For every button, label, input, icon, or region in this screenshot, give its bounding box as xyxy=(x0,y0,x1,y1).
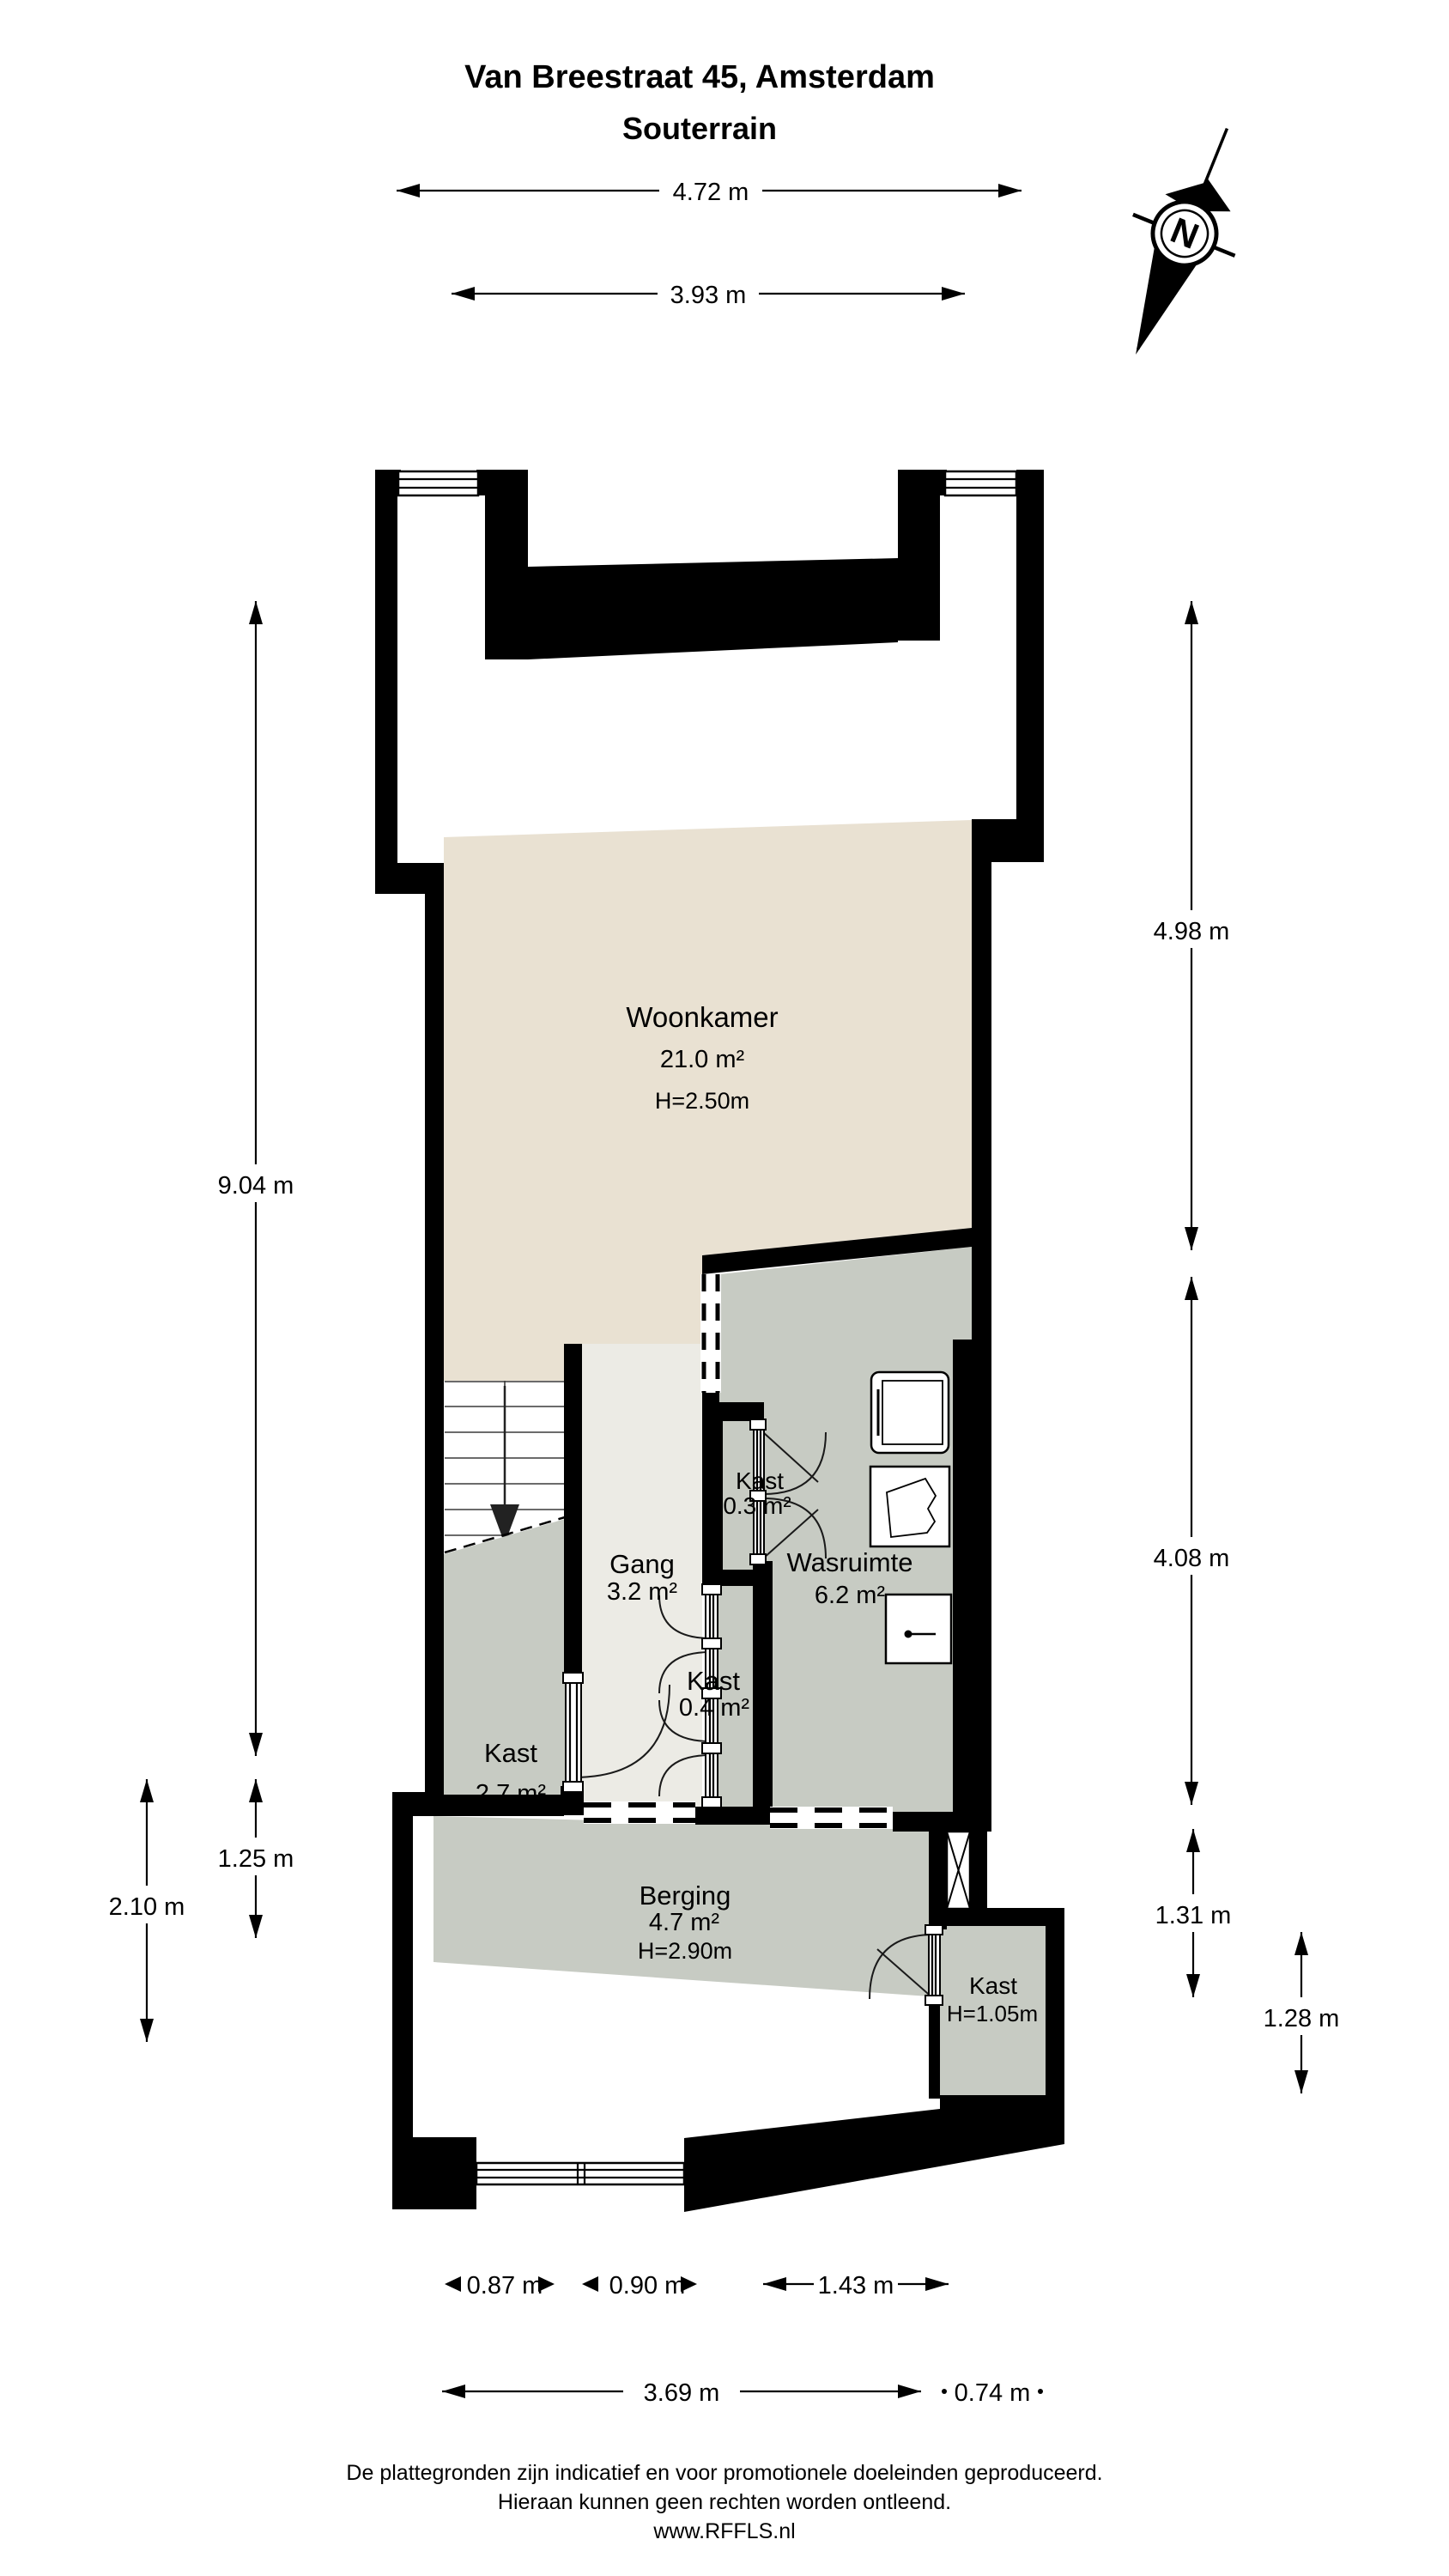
wall-left-post xyxy=(485,470,528,659)
title-line1: Van Breestraat 45, Amsterdam xyxy=(464,59,935,95)
wall-stairs-gang xyxy=(564,1344,582,1681)
page-title: Van Breestraat 45, Amsterdam Souterrain xyxy=(464,59,935,146)
wall-right-mid xyxy=(972,862,991,1344)
title-line2: Souterrain xyxy=(622,111,777,146)
dim-label: 0.90 m xyxy=(609,2272,686,2300)
footer-disclaimer: De plattegronden zijn indicatief en voor… xyxy=(346,2461,1102,2543)
wall-kast03-left xyxy=(702,1411,723,1571)
dim-label: 1.25 m xyxy=(218,1845,294,1873)
label-kast105-height: H=1.05m xyxy=(947,2001,1038,2026)
window-icon-bottom xyxy=(476,2163,684,2184)
label-wasruimte-area: 6.2 m² xyxy=(815,1582,886,1609)
label-kast27-name: Kast xyxy=(484,1738,537,1768)
dim-label: 1.28 m xyxy=(1264,2005,1340,2032)
wall-below-shaft xyxy=(947,1908,987,1926)
dim-label: 3.93 m xyxy=(670,282,747,309)
wall-left-upper xyxy=(375,470,397,868)
label-gang-name: Gang xyxy=(609,1549,675,1579)
dimension-bottom-3-69: 3.69 m xyxy=(442,2379,921,2407)
sink-icon xyxy=(886,1595,951,1663)
wall-topleft-corner xyxy=(375,470,401,495)
compass-icon: N xyxy=(1085,108,1278,375)
dim-label: 4.72 m xyxy=(673,179,749,206)
dim-label: 9.04 m xyxy=(218,1172,294,1200)
dimension-left-2-10: 2.10 m xyxy=(96,1779,197,2042)
dimension-right-1-28: 1.28 m xyxy=(1250,1932,1353,2093)
label-gang-area: 3.2 m² xyxy=(607,1578,678,1606)
dimension-right-4-98: 4.98 m xyxy=(1140,601,1243,1250)
label-kast03-name: Kast xyxy=(736,1467,784,1494)
label-kast04-name: Kast xyxy=(687,1666,740,1696)
passage-woonkamer-wasruimte xyxy=(700,1274,721,1393)
label-kast04-area: 0.4 m² xyxy=(679,1694,750,1722)
dim-label: 0.74 m xyxy=(955,2379,1031,2407)
label-woonkamer-name: Woonkamer xyxy=(626,1001,778,1033)
label-berging-name: Berging xyxy=(640,1880,731,1911)
washer-icon xyxy=(871,1372,949,1453)
wall-left-step xyxy=(375,863,444,894)
label-berging-area: 4.7 m² xyxy=(649,1909,720,1936)
label-woonkamer-area: 21.0 m² xyxy=(660,1046,745,1073)
dimension-right-1-31: 1.31 m xyxy=(1142,1829,1245,1997)
label-kast105-name: Kast xyxy=(969,1972,1017,1999)
wall-berging-mid xyxy=(695,1807,770,1825)
dimension-top-3-93: 3.93 m xyxy=(452,275,965,311)
label-kast03-area: 0.3 m² xyxy=(723,1492,791,1519)
wall-right-upper xyxy=(1016,470,1044,819)
wall-bottom-slab xyxy=(684,2095,1064,2212)
dimension-bottom-0-87: 0.87 m xyxy=(445,2272,555,2300)
wall-entry-bar xyxy=(528,558,898,659)
wall-below-kast105-door xyxy=(929,1998,940,2099)
dim-label: 1.31 m xyxy=(1155,1902,1232,1929)
passage-wasruimte-berging xyxy=(770,1807,893,1829)
label-woonkamer-height: H=2.50m xyxy=(655,1088,749,1114)
dimension-bottom-0-74: 0.74 m xyxy=(942,2379,1043,2407)
dim-label: 1.43 m xyxy=(818,2272,894,2300)
wall-shaft-left xyxy=(929,1820,947,1929)
label-kast27-area: 2.7 m² xyxy=(476,1780,547,1807)
footer-line2: Hieraan kunnen geen rechten worden ontle… xyxy=(498,2490,951,2514)
duct-shaft-icon xyxy=(947,1832,970,1909)
dimension-bottom-1-43: 1.43 m xyxy=(763,2272,949,2300)
dim-label: 4.08 m xyxy=(1154,1545,1230,1572)
wall-right-lower xyxy=(953,1340,991,1832)
label-wasruimte-name: Wasruimte xyxy=(787,1547,913,1577)
wall-shaft-right xyxy=(970,1820,987,1911)
wall-right-step xyxy=(972,819,1044,862)
dim-label: 2.10 m xyxy=(109,1893,185,1921)
window-icon-top-right xyxy=(945,471,1016,495)
floorplan-canvas: Van Breestraat 45, Amsterdam Souterrain xyxy=(0,0,1449,2576)
wall-right-post xyxy=(898,470,940,641)
dim-label: 4.98 m xyxy=(1154,918,1230,945)
dryer-icon xyxy=(870,1467,949,1546)
dimension-left-1-25: 1.25 m xyxy=(206,1779,306,1938)
wall-left-lower xyxy=(392,1792,413,2112)
dimension-left-9-04: 9.04 m xyxy=(206,601,306,1756)
floorplan-page: Van Breestraat 45, Amsterdam Souterrain xyxy=(0,0,1449,2576)
dimension-top-4-72: 4.72 m xyxy=(397,172,1022,208)
label-berging-height: H=2.90m xyxy=(638,1938,732,1964)
wall-bottomleft-corner xyxy=(392,2112,476,2209)
window-icon-top-left xyxy=(398,471,478,495)
footer-line1: De plattegronden zijn indicatief en voor… xyxy=(346,2461,1102,2485)
wall-left-mid xyxy=(425,894,444,1792)
dim-label: 0.87 m xyxy=(467,2272,543,2300)
dimension-right-4-08: 4.08 m xyxy=(1140,1277,1243,1805)
footer-line3: www.RFFLS.nl xyxy=(652,2519,795,2543)
passage-gang-berging xyxy=(584,1801,695,1824)
dimension-bottom-0-90: 0.90 m xyxy=(582,2272,697,2300)
dim-label: 3.69 m xyxy=(644,2379,720,2407)
wall-kast-right xyxy=(753,1561,773,1820)
